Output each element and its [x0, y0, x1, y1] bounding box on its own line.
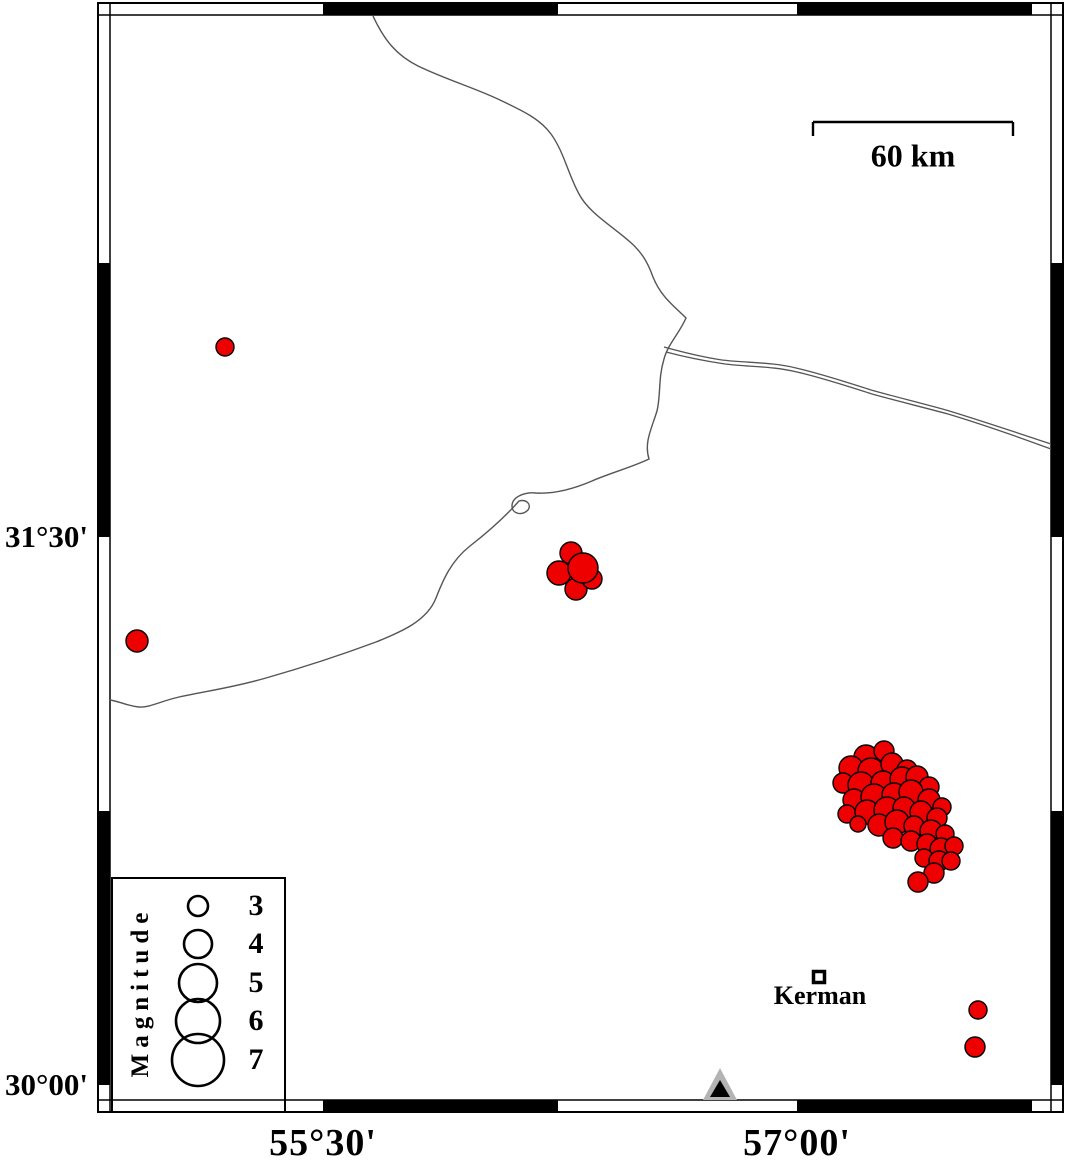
lat-label-30-00: 30°00' [5, 1067, 88, 1103]
earthquake-marker [969, 1001, 987, 1019]
legend-value-5: 5 [249, 966, 264, 1000]
earthquake-marker [942, 852, 960, 870]
double-road-lower [666, 352, 1051, 449]
legend-value-7: 7 [249, 1043, 264, 1077]
earthquake-marker [126, 630, 148, 652]
city-label-kerman: Kerman [774, 981, 866, 1011]
lon-label-55-30: 55°30' [269, 1121, 377, 1162]
frame-band-top [323, 3, 558, 15]
lat-label-31-30: 31°30' [5, 519, 88, 555]
scale-bar [813, 122, 1013, 136]
earthquake-marker [850, 816, 866, 832]
scale-bar-label: 60 km [871, 138, 955, 175]
frame-band-left [98, 263, 110, 537]
frame-band-right [1051, 263, 1063, 537]
legend-title-magnitude: Magnitude [127, 907, 155, 1078]
station-triangle-marker [703, 1068, 737, 1100]
double-road-upper [664, 347, 1051, 444]
seismicity-map-figure: 31°30' 30°00' 55°30' 57°00' 60 km Kerman… [0, 0, 1066, 1162]
legend-value-6: 6 [249, 1004, 264, 1038]
legend-value-4: 4 [249, 927, 264, 961]
frame-band-bottom [797, 1100, 1032, 1112]
frame-band-top [797, 3, 1032, 15]
roads-fault-lines [109, 16, 1051, 707]
frame-band-bottom [323, 1100, 558, 1112]
legend-value-3: 3 [249, 889, 264, 923]
earthquake-marker [908, 872, 928, 892]
earthquake-marker [216, 338, 234, 356]
earthquake-marker [883, 828, 903, 848]
frame-band-right [1051, 811, 1063, 1085]
frame-band-left [98, 811, 110, 1085]
main-line [109, 16, 686, 707]
earthquake-marker [568, 553, 598, 583]
lon-label-57-00: 57°00' [743, 1121, 851, 1162]
earthquake-marker [965, 1037, 985, 1057]
